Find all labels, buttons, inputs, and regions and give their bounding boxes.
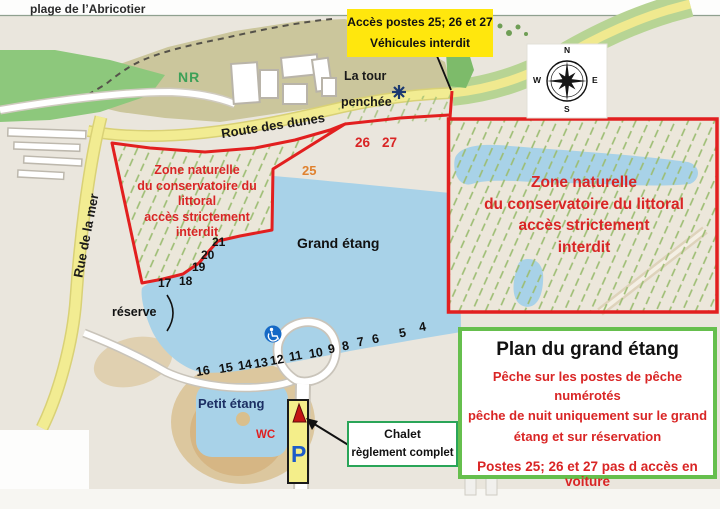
- tower-label-line1: La tour: [344, 70, 386, 83]
- zone-right-text: Zone naturelle du conservatoire du litto…: [458, 172, 710, 258]
- chalet-line1: Chalet: [349, 427, 456, 441]
- wc-label: WC: [256, 430, 275, 442]
- post-27: 27: [382, 136, 397, 150]
- fishing-pond-map: plage de l’Abricotier Accès postes 25; 2…: [0, 0, 720, 509]
- nr-label: NR: [178, 70, 200, 84]
- plan-info-box: Plan du grand étang Pêche sur les postes…: [458, 327, 717, 479]
- post-26: 26: [355, 136, 370, 150]
- post-16: 16: [195, 364, 211, 379]
- bottom-strip: [0, 489, 720, 509]
- zone-right-line1: Zone naturelle: [458, 172, 710, 194]
- tower-star-icon: [392, 85, 406, 99]
- post-10: 10: [308, 346, 324, 361]
- zone-right-line4: interdit: [458, 237, 710, 259]
- zone-right-line2: du conservatoire du littoral: [458, 194, 710, 216]
- zone-right-line3: accès strictement: [458, 215, 710, 237]
- plan-rule-3: étang et sur réservation: [462, 428, 713, 447]
- access-warning-box: Accès postes 25; 26 et 27 Véhicules inte…: [347, 9, 493, 57]
- chalet-line2: règlement complet: [349, 447, 456, 459]
- wheelchair-icon: [265, 326, 282, 343]
- post-18: 18: [179, 275, 192, 287]
- post-25: 25: [302, 164, 316, 177]
- grand-etang-label: Grand étang: [297, 236, 379, 250]
- post-21: 21: [212, 236, 225, 248]
- petit-etang-island: [236, 412, 250, 426]
- post-11: 11: [288, 349, 303, 364]
- zone-left-line4: interdit: [118, 225, 276, 241]
- plan-rule-2: pêche de nuit uniquement sur le grand: [462, 407, 713, 426]
- access-warning-line2: Véhicules interdit: [347, 36, 493, 50]
- tower-label-line2: penchée: [341, 96, 392, 109]
- post-13: 13: [253, 356, 269, 371]
- zone-left-line1: Zone naturelle: [118, 163, 276, 179]
- post-14: 14: [237, 358, 253, 373]
- post-17: 17: [158, 277, 171, 289]
- blank-corner: [0, 430, 89, 492]
- zone-left-text: Zone naturelle du conservatoire du litto…: [118, 163, 276, 241]
- compass-west-label: W: [533, 76, 541, 85]
- compass-east-label: E: [592, 76, 598, 85]
- compass-south-label: S: [564, 105, 570, 114]
- plan-rule-1: Pêche sur les postes de pêche numérotés: [462, 368, 713, 405]
- post-19: 19: [192, 261, 205, 273]
- access-warning-line1: Accès postes 25; 26 et 27: [347, 15, 493, 29]
- petit-etang-label: Petit étang: [198, 397, 264, 410]
- chalet-info-box: Chalet règlement complet: [347, 421, 458, 467]
- plan-title: Plan du grand étang: [462, 339, 713, 361]
- compass-north-label: N: [564, 46, 570, 55]
- reserve-label: réserve: [112, 306, 157, 319]
- zone-left-line2: du conservatoire du littoral: [118, 179, 276, 210]
- zone-left-line3: accès strictement: [118, 210, 276, 226]
- post-15: 15: [218, 361, 234, 376]
- plan-rule-4: Postes 25; 26 et 27 pas d accès en voitu…: [462, 459, 713, 489]
- parking-label: P: [291, 443, 306, 466]
- access-boundary-spur: [450, 91, 452, 118]
- post-12: 12: [269, 353, 285, 368]
- beach-label: plage de l’Abricotier: [30, 3, 145, 15]
